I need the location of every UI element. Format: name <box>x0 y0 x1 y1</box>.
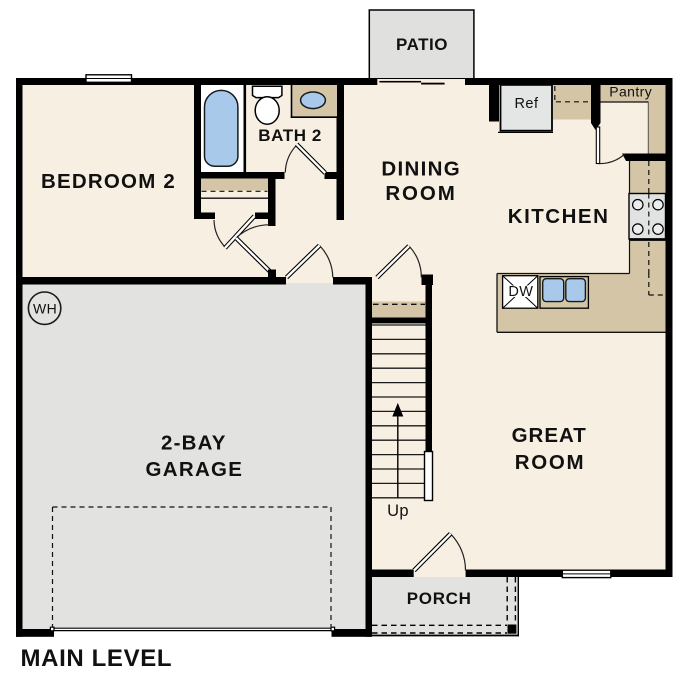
svg-text:ROOM: ROOM <box>385 182 456 205</box>
svg-text:WH: WH <box>33 300 57 316</box>
svg-text:BEDROOM 2: BEDROOM 2 <box>41 170 176 193</box>
svg-text:DINING: DINING <box>381 158 461 181</box>
svg-text:Pantry: Pantry <box>609 84 652 100</box>
svg-text:DW: DW <box>508 284 533 300</box>
svg-text:GREAT: GREAT <box>512 424 587 447</box>
svg-text:Ref: Ref <box>514 96 539 112</box>
svg-text:GARAGE: GARAGE <box>146 458 244 481</box>
svg-text:Up: Up <box>387 502 409 520</box>
svg-text:MAIN LEVEL: MAIN LEVEL <box>21 645 173 672</box>
svg-text:PORCH: PORCH <box>407 589 472 608</box>
svg-text:2-BAY: 2-BAY <box>161 432 227 455</box>
svg-text:KITCHEN: KITCHEN <box>508 205 610 228</box>
svg-text:ROOM: ROOM <box>515 451 586 474</box>
svg-text:BATH 2: BATH 2 <box>258 126 322 145</box>
svg-text:PATIO: PATIO <box>396 35 448 54</box>
